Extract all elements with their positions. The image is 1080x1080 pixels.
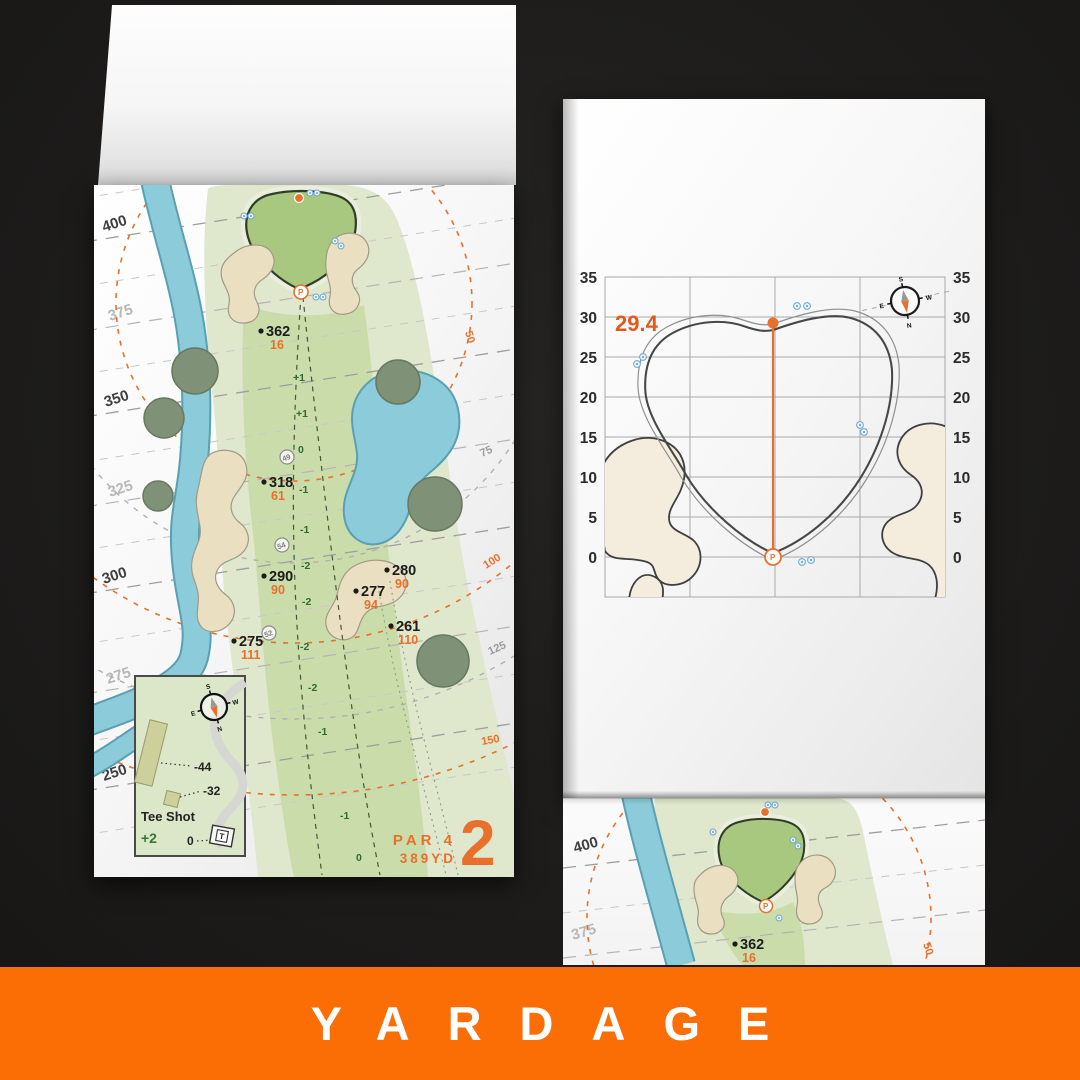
- slope-label: -1: [318, 726, 327, 738]
- yardage-banner: YARDAGE: [0, 967, 1080, 1080]
- distance-label: 325: [106, 477, 135, 501]
- tree: [144, 398, 184, 438]
- chart-bunker: [603, 438, 701, 601]
- arc-label: 50: [920, 941, 935, 956]
- distance-label: 350: [102, 387, 131, 411]
- ball-dot: [761, 808, 770, 817]
- sprinkler-icon: [710, 829, 716, 835]
- next-page-svg: 400 375 50 P 362: [563, 798, 985, 965]
- checkpoint-badge: 54: [275, 538, 289, 552]
- pin-marker: P: [765, 549, 781, 565]
- par-label: PAR 4: [393, 832, 456, 849]
- depth-dot: [768, 318, 779, 329]
- axis-label: 30: [580, 310, 597, 327]
- axis-label: 0: [588, 550, 597, 567]
- distance-label: 375: [569, 921, 598, 944]
- tee-box-forward: [164, 791, 181, 808]
- offset-label: -32: [203, 784, 221, 798]
- tree: [417, 635, 469, 687]
- axis-label: 5: [588, 510, 597, 527]
- compass-n: N: [906, 322, 912, 330]
- axis-labels-left: 35 30 25 20 15 10 5 0: [580, 270, 598, 567]
- axis-label: 35: [953, 270, 971, 287]
- green-chart-svg: 35 30 25 20 15 10 5 0 35 30 25 20 15 10 …: [563, 99, 985, 798]
- inset-score: +2: [141, 830, 157, 846]
- slope-label: -2: [300, 641, 309, 653]
- slope-label: -1: [300, 524, 309, 536]
- axis-label: 20: [580, 390, 597, 407]
- svg-text:P: P: [770, 553, 776, 562]
- svg-text:110: 110: [398, 633, 418, 647]
- compass-w: W: [925, 294, 933, 302]
- depth-value: 29.4: [615, 311, 659, 336]
- axis-label: 15: [953, 430, 971, 447]
- flipped-blank-page: [98, 5, 516, 185]
- compass-icon: S N E W: [857, 268, 955, 337]
- slope-label: +1: [293, 372, 305, 384]
- tree: [143, 481, 173, 511]
- svg-text:90: 90: [271, 583, 285, 597]
- svg-text:90: 90: [395, 577, 409, 591]
- svg-text:16: 16: [742, 951, 756, 965]
- sprinkler-icon: [857, 422, 868, 436]
- offset-label: 0: [187, 834, 194, 848]
- slope-label: -1: [340, 810, 349, 822]
- distance-label: 300: [100, 564, 129, 588]
- page-spine-shadow: [563, 99, 579, 798]
- tree: [172, 348, 218, 394]
- yardage-label: 389YD: [400, 851, 456, 866]
- hole-map-svg: 400 375 350 325 300 275 250 50 75 100 12…: [94, 185, 514, 877]
- slope-label: -2: [302, 596, 311, 608]
- checkpoint-badge: 52: [262, 626, 276, 640]
- tree: [376, 360, 420, 404]
- sprinkler-icon: [799, 557, 815, 566]
- svg-text:111: 111: [241, 648, 261, 662]
- ball-dot: [295, 194, 304, 203]
- slope-label: +1: [296, 408, 308, 420]
- distance-label: 275: [104, 664, 133, 688]
- pin-icon: P: [760, 900, 773, 913]
- axis-label: 25: [580, 350, 598, 367]
- axis-label: 30: [953, 310, 970, 327]
- sprinkler-icon: [776, 915, 782, 921]
- arc-label: 125: [486, 639, 508, 657]
- offset-label: -44: [194, 760, 212, 774]
- axis-label: 15: [580, 430, 598, 447]
- axis-label: 10: [580, 470, 597, 487]
- svg-text:P: P: [298, 288, 304, 297]
- slope-label: 0: [356, 852, 362, 864]
- slope-label: -2: [308, 682, 317, 694]
- axis-label: 5: [953, 510, 962, 527]
- svg-text:16: 16: [270, 338, 284, 352]
- tree: [408, 477, 462, 531]
- axis-label: 10: [953, 470, 970, 487]
- axis-labels-right: 35 30 25 20 15 10 5 0: [953, 270, 971, 567]
- banner-label: YARDAGE: [273, 996, 808, 1051]
- sprinkler-icon: [634, 354, 647, 368]
- axis-label: 35: [580, 270, 598, 287]
- axis-label: 0: [953, 550, 962, 567]
- svg-text:P: P: [763, 902, 769, 911]
- next-page-preview: 400 375 50 P 362: [563, 798, 985, 965]
- arc-label: 100: [481, 552, 503, 572]
- svg-text:94: 94: [364, 598, 378, 612]
- chart-bunker: [882, 423, 947, 599]
- hole-number: 2: [460, 807, 496, 877]
- axis-label: 20: [953, 390, 970, 407]
- axis-label: 25: [953, 350, 971, 367]
- green-chart-page: 35 30 25 20 15 10 5 0 35 30 25 20 15 10 …: [563, 99, 985, 798]
- slope-label: 0: [298, 444, 304, 456]
- distance-label: 400: [571, 834, 600, 857]
- arc-label: 50: [462, 330, 477, 345]
- slope-label: -2: [301, 560, 310, 572]
- svg-text:61: 61: [271, 489, 285, 503]
- distance-label: 400: [100, 212, 129, 236]
- inset-title: Tee Shot: [141, 809, 196, 824]
- sprinkler-icon: [794, 303, 811, 310]
- distance-label: 375: [106, 301, 135, 325]
- page-fold-shadow: [563, 791, 985, 805]
- arc-label: 75: [478, 444, 494, 460]
- compass-e: E: [879, 303, 885, 311]
- tee-shot-inset: S N E W -44 -32 0 T Tee Shot +2: [135, 676, 247, 856]
- pin-icon: P: [294, 285, 308, 299]
- slope-label: -1: [299, 484, 308, 496]
- hole-map-page: 400 375 350 325 300 275 250 50 75 100 12…: [94, 185, 514, 877]
- checkpoint-badge: 49: [280, 450, 294, 464]
- tee-marker-icon: T: [210, 825, 235, 847]
